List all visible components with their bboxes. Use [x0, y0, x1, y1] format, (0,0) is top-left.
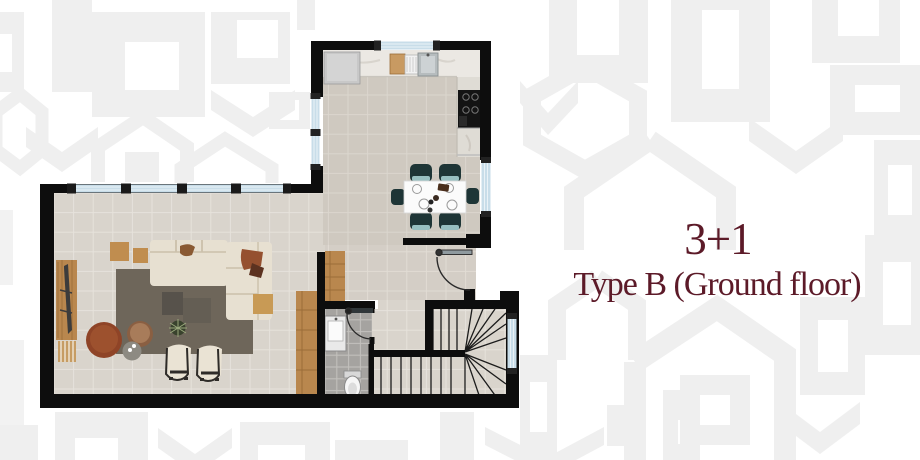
svg-text:Type B (Ground floor): Type B (Ground floor): [573, 266, 860, 303]
svg-text:3+1: 3+1: [684, 214, 751, 264]
